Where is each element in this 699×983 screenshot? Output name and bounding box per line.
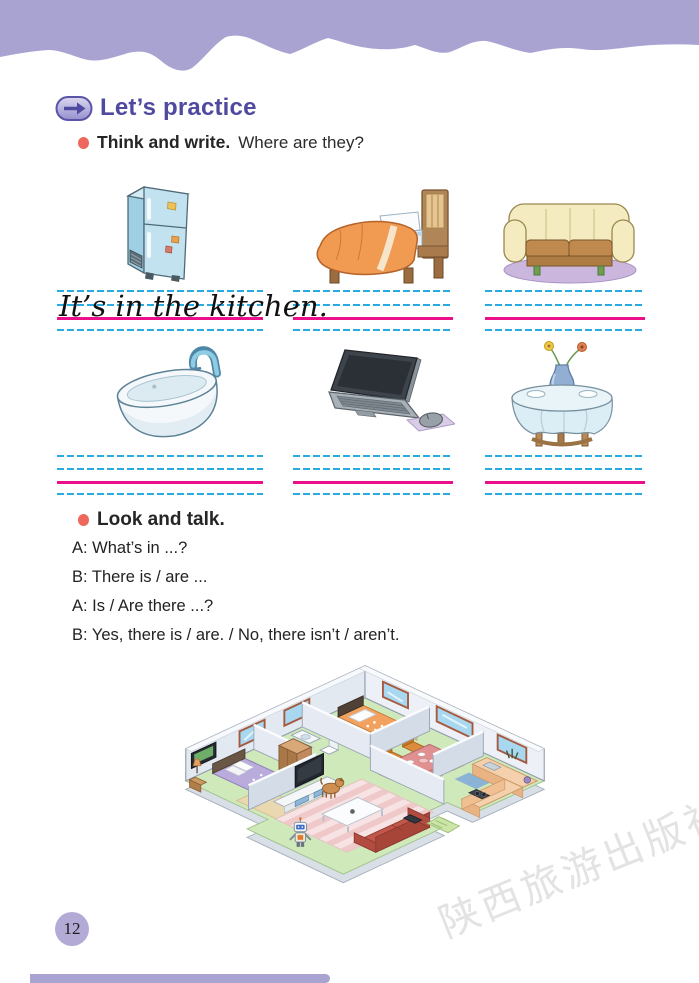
activity-look-and-talk-header: Look and talk. [78,509,225,531]
textbook-page: Let’s practice Think and write. Where ar… [0,0,699,983]
writing-lines [57,453,263,497]
dialogue-line: A: Is / Are there ...? [72,597,213,616]
page-number: 12 [55,912,89,946]
guide-line [485,290,645,292]
guide-line [57,468,263,470]
guide-line [485,317,645,320]
guide-line [57,455,263,457]
guide-line [57,329,263,331]
guide-line [57,493,263,495]
activity-prompt: Where are they? [238,133,364,153]
writing-lines [485,453,645,497]
guide-line [57,481,263,484]
top-wave-band [0,0,699,80]
activity-think-and-write-header: Think and write. Where are they? [78,132,364,153]
writing-lines [293,453,453,497]
writing-lines [485,288,645,332]
refrigerator-illustration [122,176,198,284]
bathtub-illustration [110,340,230,448]
bottom-accent-bar [30,974,330,983]
guide-line [293,493,453,495]
dialogue-line: A: What’s in ...? [72,539,187,558]
guide-line [293,455,453,457]
guide-line [485,493,645,495]
guide-line [485,481,645,484]
laptop-illustration [315,346,455,438]
guide-line [293,468,453,470]
section-header: Let’s practice [55,94,257,122]
arrow-right-icon [55,95,93,122]
dialogue-line: B: Yes, there is / are. / No, there isn’… [72,626,399,645]
table-illustration [506,336,618,450]
activity-label: Think and write. [97,132,230,153]
guide-line [485,468,645,470]
guide-line [485,455,645,457]
bullet-icon [78,137,89,149]
handwritten-answer: It’s in the kitchen. [59,289,328,323]
house-cutaway-illustration [165,660,565,896]
sofa-illustration [494,194,644,286]
guide-line [485,329,645,331]
bed-illustration [306,186,458,286]
guide-line [293,481,453,484]
guide-line [293,329,453,331]
bullet-icon [78,514,89,526]
dialogue-line: B: There is / are ... [72,568,207,587]
activity-label: Look and talk. [97,509,225,531]
guide-line [485,304,645,306]
page-title: Let’s practice [100,94,257,122]
